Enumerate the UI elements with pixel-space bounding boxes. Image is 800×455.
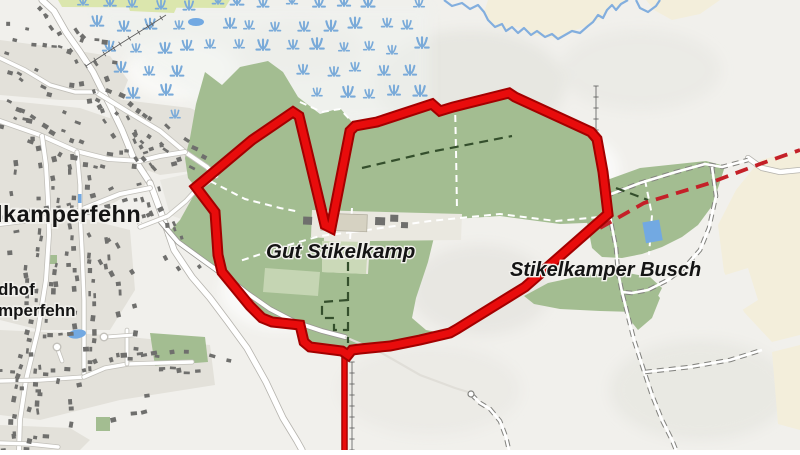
svg-text:lkamperfehn: lkamperfehn xyxy=(0,201,141,227)
svg-text:Gut Stikelkamp: Gut Stikelkamp xyxy=(266,240,415,263)
svg-text:mperfehn: mperfehn xyxy=(0,301,75,320)
svg-text:dhof: dhof xyxy=(0,280,35,299)
svg-text:Stikelkamper Busch: Stikelkamper Busch xyxy=(510,259,701,281)
